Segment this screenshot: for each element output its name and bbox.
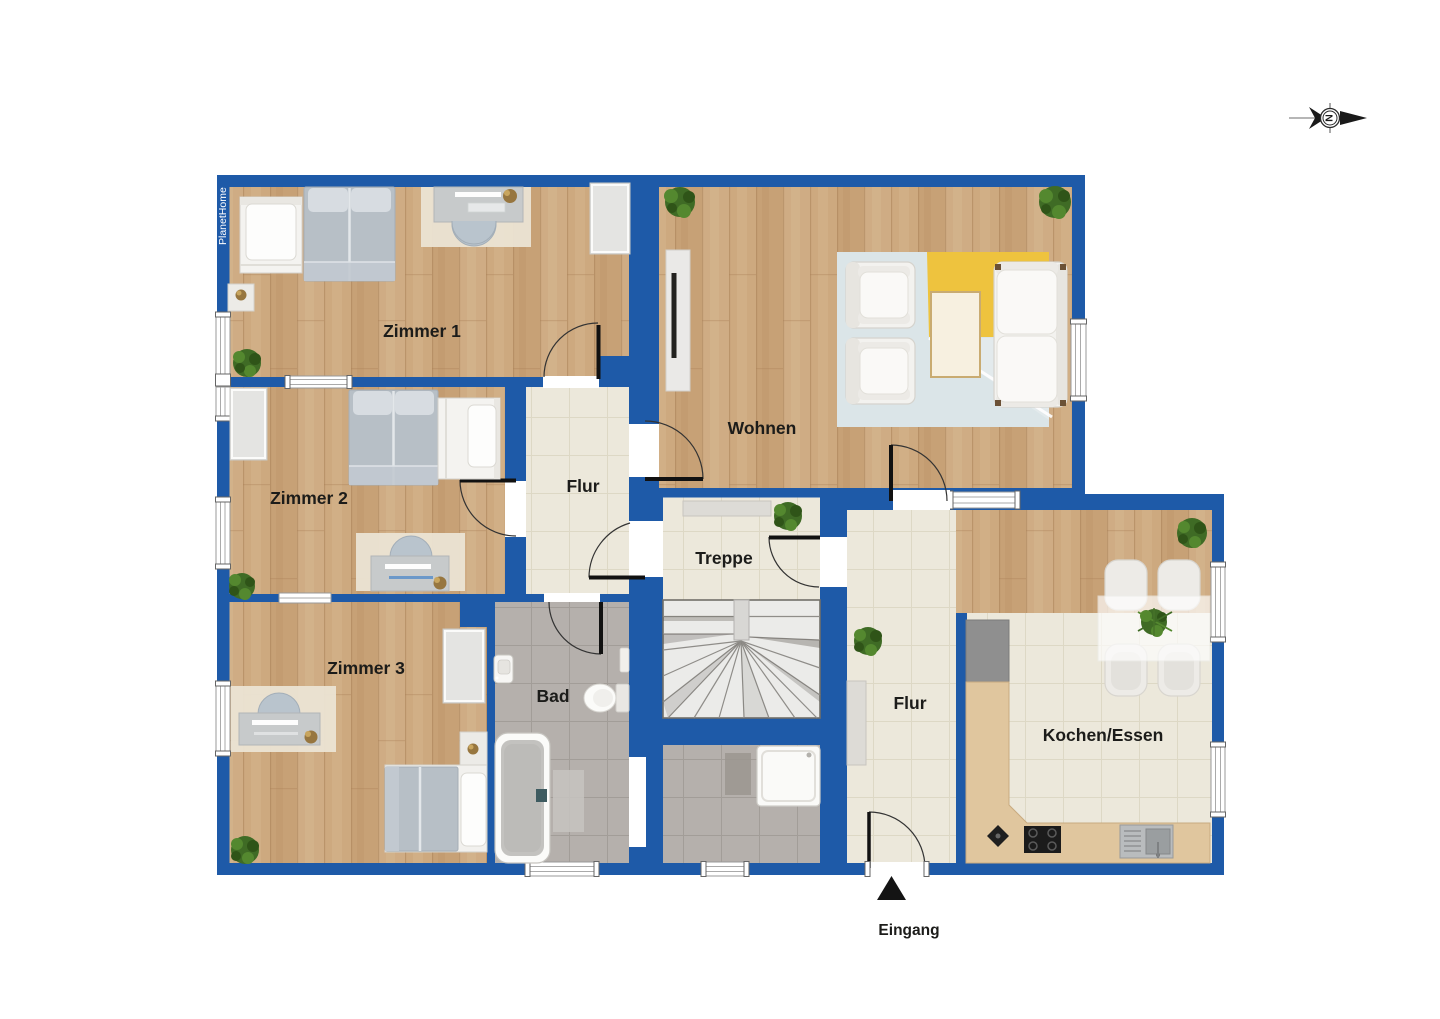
- svg-text:N: N: [1323, 114, 1335, 122]
- svg-text:Treppe: Treppe: [695, 548, 753, 568]
- svg-text:Flur: Flur: [893, 693, 926, 713]
- svg-text:Flur: Flur: [566, 476, 599, 496]
- svg-text:Kochen/Essen: Kochen/Essen: [1043, 725, 1164, 745]
- svg-text:Bad: Bad: [536, 686, 569, 706]
- svg-text:Eingang: Eingang: [878, 922, 939, 939]
- svg-text:Zimmer 1: Zimmer 1: [383, 321, 461, 341]
- svg-text:Zimmer 3: Zimmer 3: [327, 658, 405, 678]
- svg-text:Zimmer 2: Zimmer 2: [270, 488, 348, 508]
- svg-text:PlanetHome: PlanetHome: [217, 187, 229, 245]
- svg-text:Wohnen: Wohnen: [728, 418, 797, 438]
